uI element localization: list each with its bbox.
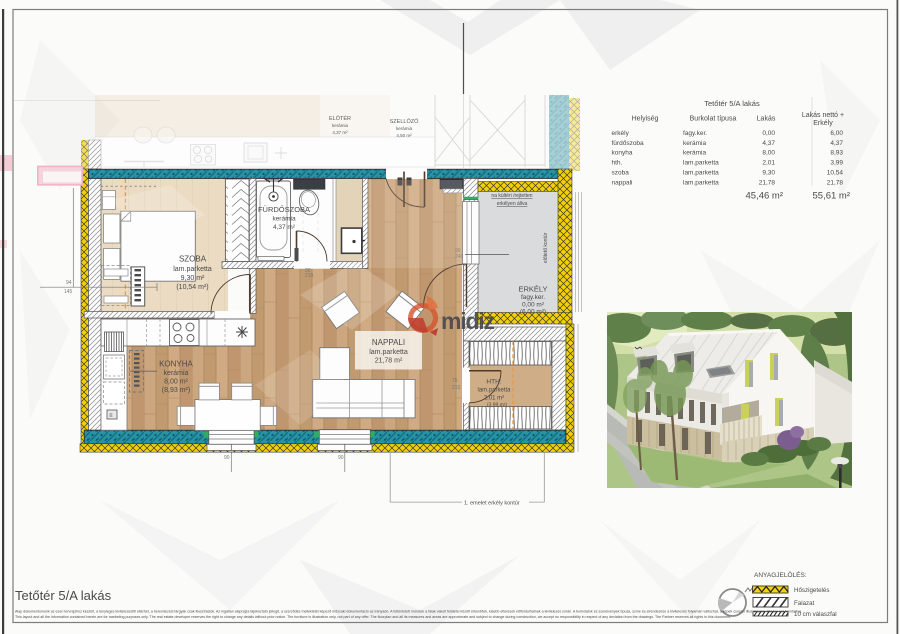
svg-text:kerámia: kerámia [683, 140, 707, 147]
svg-text:Erkély: Erkély [813, 120, 833, 127]
svg-text:fürdőszoba: fürdőszoba [612, 140, 645, 147]
svg-text:6,00: 6,00 [830, 130, 843, 137]
svg-text:Falazat: Falazat [794, 600, 815, 607]
svg-text:erkély: erkély [612, 130, 630, 137]
svg-text:Lakás: Lakás [757, 116, 776, 123]
svg-text:210: 210 [452, 385, 461, 391]
svg-text:1. emelet erkély kontúr: 1. emelet erkély kontúr [464, 501, 520, 507]
svg-text:Tetőtér 5/A lakás: Tetőtér 5/A lakás [15, 588, 112, 603]
svg-text:SZELLŐZŐ: SZELLŐZŐ [390, 118, 419, 125]
svg-text:NAPPALI: NAPPALI [372, 338, 405, 347]
svg-text:(8,93 m²): (8,93 m²) [162, 387, 190, 394]
svg-text:9,30: 9,30 [762, 169, 775, 176]
svg-text:94: 94 [66, 280, 72, 286]
svg-text:210: 210 [305, 273, 314, 279]
svg-text:lam.parketta: lam.parketta [683, 179, 719, 186]
svg-text:kerámia: kerámia [332, 123, 349, 128]
svg-text:SZOBA: SZOBA [179, 255, 207, 264]
svg-text:Tetőtér 5/A lakás: Tetőtér 5/A lakás [704, 99, 760, 108]
svg-text:75: 75 [452, 378, 458, 384]
svg-text:hth.: hth. [612, 159, 623, 166]
svg-text:55,61 m²: 55,61 m² [813, 191, 851, 202]
svg-text:8,93: 8,93 [830, 150, 843, 157]
svg-text:midiz: midiz [441, 308, 494, 334]
svg-text:4,37 m²: 4,37 m² [273, 224, 296, 231]
svg-text:90: 90 [338, 455, 344, 461]
svg-text:ELŐTÉR: ELŐTÉR [329, 115, 351, 122]
svg-text:145: 145 [64, 289, 73, 295]
svg-text:Lakás nettó +: Lakás nettó + [802, 112, 844, 119]
svg-text:Hőszigetelés: Hőszigetelés [794, 587, 829, 594]
svg-text:lam.parketta: lam.parketta [477, 388, 511, 394]
svg-text:(3,99 m²): (3,99 m²) [487, 403, 508, 409]
svg-text:2,01 m²: 2,01 m² [484, 396, 504, 402]
svg-text:kerámia: kerámia [396, 126, 413, 131]
svg-text:Alap dokumentumunk az ezen ter: Alap dokumentumunk az ezen tervrajzhoz k… [15, 610, 802, 614]
svg-text:0,00 m²: 0,00 m² [522, 302, 545, 309]
svg-text:előtető kontúr: előtető kontúr [543, 232, 549, 263]
svg-text:4,37: 4,37 [762, 140, 775, 147]
svg-text:lam.parketta: lam.parketta [173, 266, 212, 273]
svg-text:90: 90 [224, 455, 230, 461]
svg-text:kerámia: kerámia [164, 370, 189, 377]
svg-text:21,78 m²: 21,78 m² [375, 358, 403, 365]
svg-text:HTH:: HTH: [486, 379, 501, 386]
svg-text:2,01: 2,01 [762, 159, 775, 166]
svg-text:(6,00 m²): (6,00 m²) [520, 309, 546, 316]
svg-text:Burkolat típusa: Burkolat típusa [690, 116, 737, 123]
svg-text:21,78: 21,78 [827, 179, 844, 186]
svg-text:21,78: 21,78 [759, 179, 776, 186]
svg-text:(10,54 m²): (10,54 m²) [176, 284, 208, 291]
svg-text:nappali: nappali [612, 179, 633, 186]
svg-text:fagy.ker.: fagy.ker. [683, 130, 707, 137]
svg-text:Helyiség: Helyiség [632, 116, 659, 123]
svg-text:4,50 m²: 4,50 m² [396, 133, 412, 138]
svg-text:≡: ≡ [109, 413, 113, 419]
svg-text:ANYAGJELÖLÉS:: ANYAGJELÖLÉS: [754, 570, 807, 579]
svg-text:45,46 m²: 45,46 m² [746, 191, 784, 202]
svg-text:szoba: szoba [612, 169, 630, 176]
svg-text:lam.parketta: lam.parketta [683, 169, 719, 176]
svg-text:This layout and all the inform: This layout and all the information cont… [15, 615, 731, 619]
svg-text:0,00: 0,00 [762, 130, 775, 137]
svg-text:KONYHA: KONYHA [159, 360, 193, 369]
svg-text:8,00 m²: 8,00 m² [164, 379, 188, 386]
svg-text:na kültéri /rejtetten: na kültéri /rejtetten [491, 193, 532, 199]
svg-text:kerámia: kerámia [272, 216, 296, 223]
svg-text:lam.parketta: lam.parketta [369, 349, 408, 356]
svg-text:lam.parketta: lam.parketta [683, 159, 719, 166]
svg-text:8,00: 8,00 [762, 150, 775, 157]
svg-text:4,37: 4,37 [830, 140, 843, 147]
svg-text:9,30 m²: 9,30 m² [181, 275, 205, 282]
svg-text:ERKÉLY: ERKÉLY [518, 285, 547, 294]
svg-text:konyha: konyha [612, 150, 633, 157]
svg-text:erkélyen állva: erkélyen állva [497, 201, 528, 207]
svg-text:10,54: 10,54 [827, 169, 844, 176]
svg-text:kerámia: kerámia [683, 150, 707, 157]
svg-text:fagy.ker.: fagy.ker. [521, 294, 545, 301]
svg-text:3,99: 3,99 [830, 159, 843, 166]
svg-text:4,37 m²: 4,37 m² [332, 130, 348, 135]
svg-text:FÜRDŐSZOBA: FÜRDŐSZOBA [258, 205, 310, 214]
